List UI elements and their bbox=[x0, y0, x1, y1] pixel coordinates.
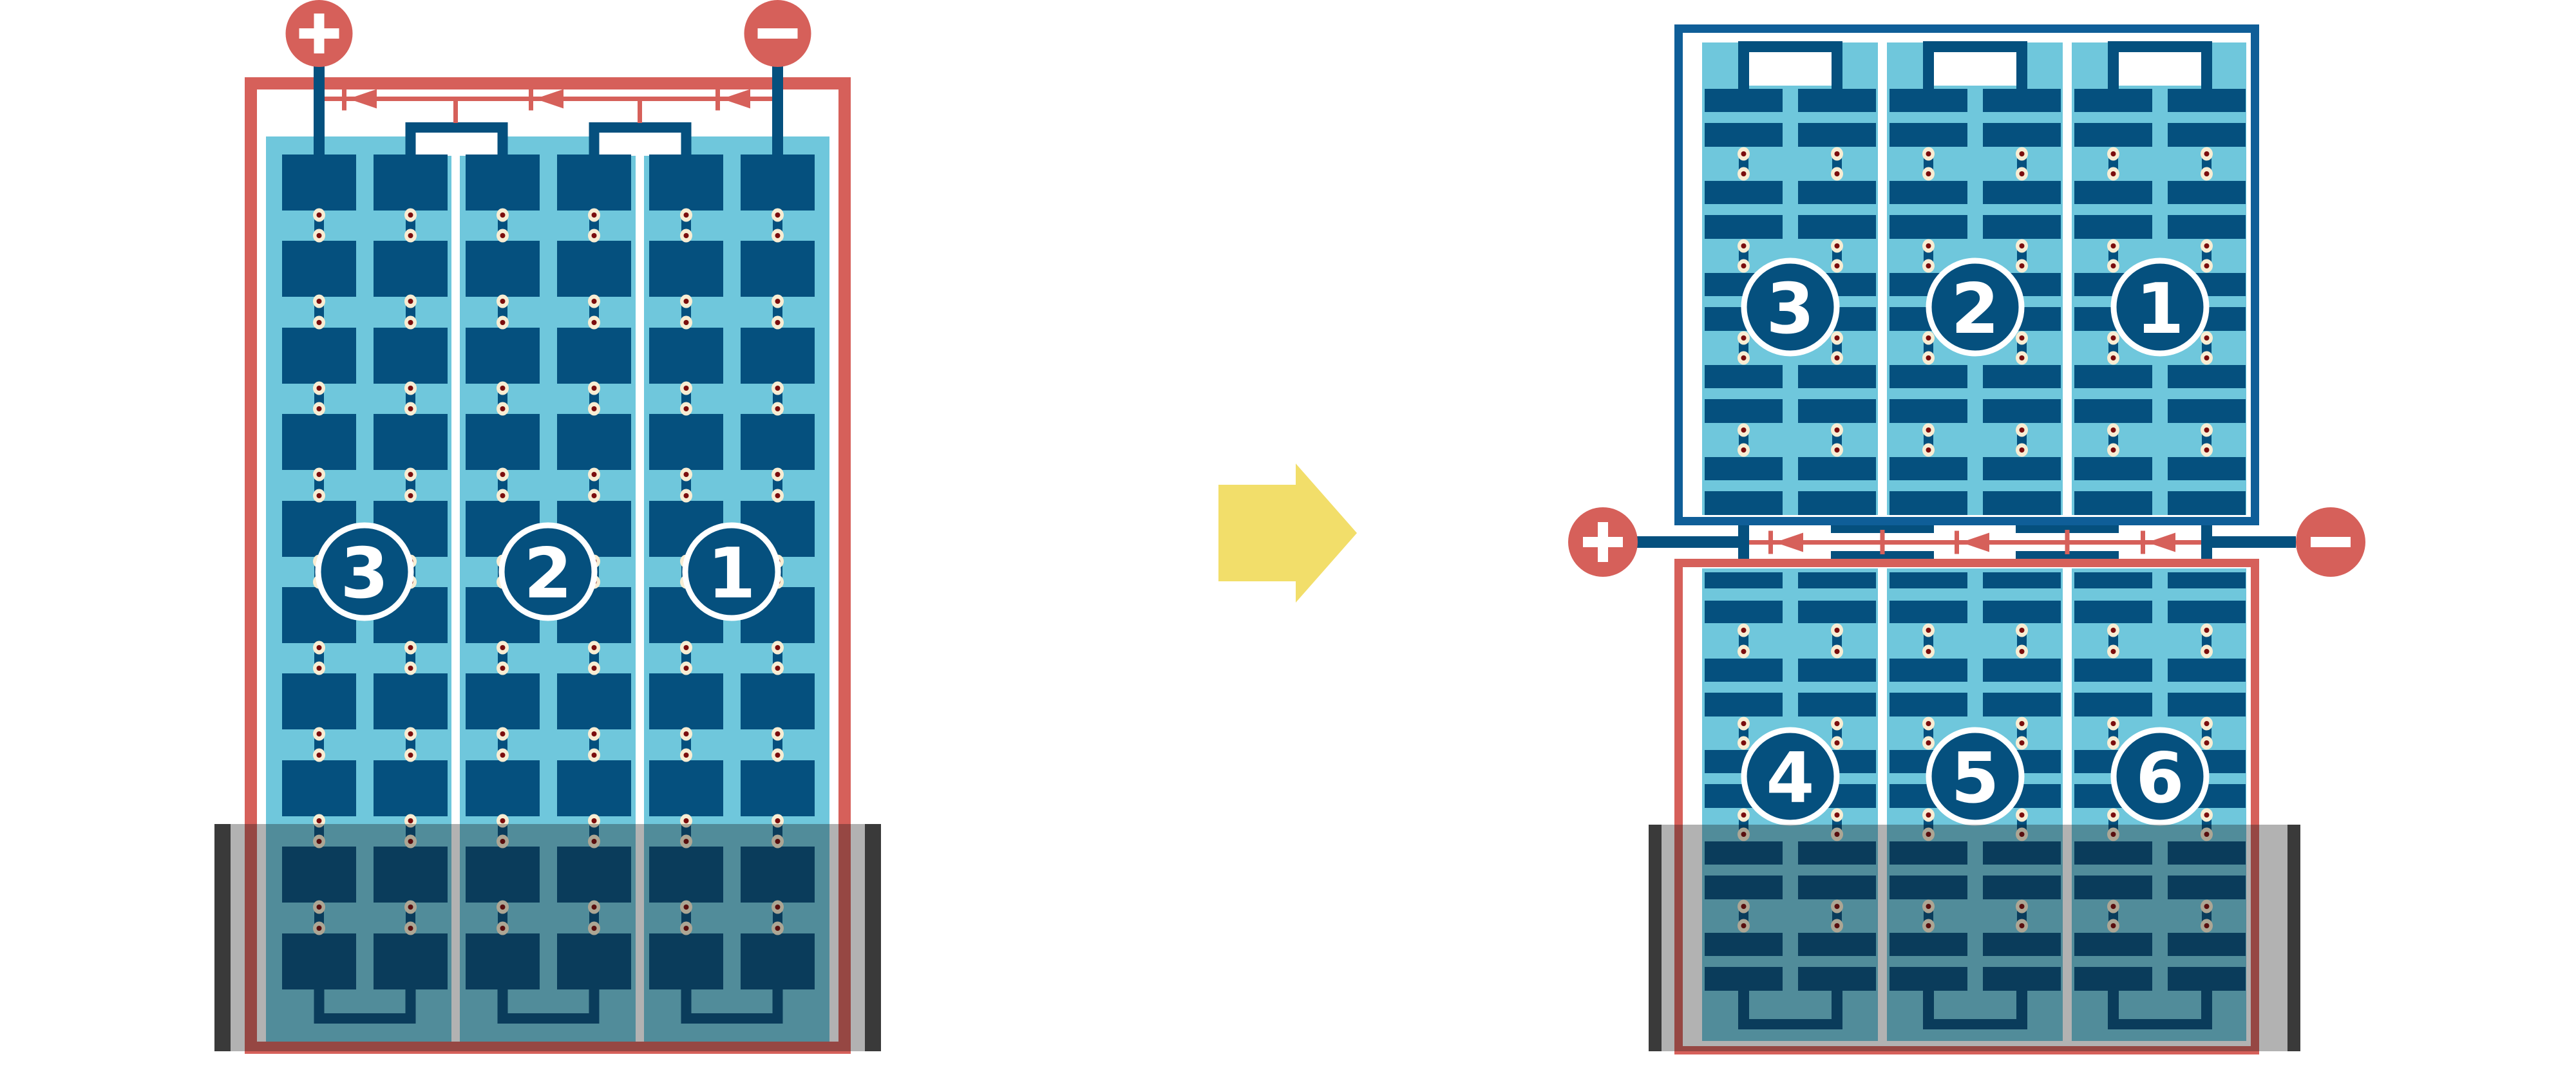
pv-cell bbox=[1983, 457, 2061, 480]
pv-cell bbox=[2168, 659, 2246, 682]
solder-joint-core bbox=[500, 731, 506, 736]
pv-cell bbox=[1798, 215, 1876, 239]
busbar bbox=[1923, 41, 2027, 52]
pv-cell bbox=[1889, 457, 1967, 480]
pv-cell bbox=[1889, 601, 1967, 623]
pv-cell bbox=[649, 241, 723, 297]
solder-joint-core bbox=[500, 645, 506, 650]
pv-cell bbox=[466, 673, 540, 729]
pv-cell bbox=[557, 155, 631, 211]
solder-joint-core bbox=[1741, 355, 1747, 361]
solder-joint-core bbox=[1835, 263, 1840, 268]
terminal-wire bbox=[772, 64, 783, 155]
pv-cell bbox=[741, 414, 815, 470]
solder-joint-core bbox=[684, 320, 689, 325]
diode-cathode-bar bbox=[529, 88, 533, 111]
busbar-leg bbox=[589, 133, 600, 156]
busbar-leg bbox=[406, 133, 416, 156]
pv-cell bbox=[2074, 215, 2152, 239]
busbar-window bbox=[2119, 52, 2201, 86]
solder-joint-core bbox=[1741, 628, 1747, 633]
solder-joint-core bbox=[500, 299, 506, 304]
solder-joint-core bbox=[684, 753, 689, 758]
solder-joint-core bbox=[1835, 335, 1840, 341]
solder-joint-core bbox=[1926, 427, 1931, 433]
bypass-diode-icon bbox=[722, 89, 750, 109]
solder-joint-core bbox=[2204, 335, 2210, 341]
solder-joint-core bbox=[684, 233, 689, 238]
solder-joint-core bbox=[1926, 355, 1931, 361]
solder-joint-core bbox=[2111, 649, 2116, 654]
pv-cell bbox=[557, 760, 631, 816]
solder-joint-core bbox=[775, 406, 781, 411]
solder-joint-core bbox=[408, 299, 413, 304]
pv-cell bbox=[1705, 181, 1783, 204]
solder-joint-core bbox=[2204, 812, 2210, 818]
pv-cell bbox=[1705, 659, 1783, 682]
pv-cell bbox=[1889, 659, 1967, 682]
diagram-canvas: 321321456 bbox=[0, 0, 2576, 1068]
solder-joint-core bbox=[2020, 628, 2025, 633]
solder-joint-core bbox=[2111, 151, 2116, 156]
solder-joint-core bbox=[1835, 243, 1840, 248]
solder-joint-core bbox=[1741, 335, 1747, 341]
solder-joint-core bbox=[1741, 740, 1747, 745]
pv-cell bbox=[1798, 601, 1876, 623]
solder-joint-core bbox=[500, 406, 506, 411]
pv-cell bbox=[2168, 693, 2246, 717]
busbar bbox=[1738, 41, 1842, 52]
solder-joint-core bbox=[2111, 447, 2116, 453]
solder-joint-core bbox=[592, 320, 597, 325]
solder-joint-core bbox=[592, 386, 597, 391]
busbar bbox=[406, 122, 508, 133]
substring-number: 3 bbox=[1766, 269, 1814, 350]
solder-joint-core bbox=[317, 666, 322, 671]
solder-joint-core bbox=[775, 818, 781, 823]
solder-joint-core bbox=[1926, 447, 1931, 453]
pv-cell bbox=[741, 760, 815, 816]
solder-joint-core bbox=[500, 753, 506, 758]
solder-joint-core bbox=[1926, 335, 1931, 341]
pv-cell bbox=[2168, 123, 2246, 147]
pv-cell bbox=[466, 328, 540, 384]
solder-joint-core bbox=[317, 645, 322, 650]
solder-joint-core bbox=[592, 645, 597, 650]
diode-cathode-bar bbox=[715, 88, 720, 111]
terminal-tab bbox=[1738, 525, 1749, 559]
pv-cell bbox=[649, 328, 723, 384]
pv-cell bbox=[282, 155, 356, 211]
pv-cell bbox=[1983, 89, 2061, 112]
solder-joint-core bbox=[500, 386, 506, 391]
terminal-wire bbox=[2212, 536, 2296, 548]
solder-joint-core bbox=[684, 493, 689, 498]
solder-joint-core bbox=[317, 386, 322, 391]
solder-joint-core bbox=[1926, 171, 1931, 176]
pv-cell bbox=[1798, 693, 1876, 717]
solder-joint-core bbox=[2020, 447, 2025, 453]
terminal-wire bbox=[314, 64, 325, 155]
pv-cell bbox=[1705, 601, 1783, 623]
solder-joint-core bbox=[408, 233, 413, 238]
solder-joint-core bbox=[1835, 151, 1840, 156]
bypass-diode-icon bbox=[2147, 533, 2175, 552]
pv-cell bbox=[649, 155, 723, 211]
solder-joint-core bbox=[1926, 628, 1931, 633]
solder-joint-core bbox=[775, 493, 781, 498]
pv-cell bbox=[282, 673, 356, 729]
pv-cell bbox=[1983, 572, 2061, 588]
solder-joint-core bbox=[2204, 447, 2210, 453]
panel-reconfiguration-diagram: 321321456 bbox=[0, 0, 2576, 1068]
pv-cell bbox=[2074, 399, 2152, 423]
solder-joint-core bbox=[317, 299, 322, 304]
solder-joint-core bbox=[1926, 812, 1931, 818]
pv-cell bbox=[1705, 399, 1783, 423]
busbar-leg bbox=[2016, 52, 2027, 89]
solder-joint-core bbox=[684, 212, 689, 218]
plus-sign bbox=[1598, 522, 1608, 562]
solder-joint-core bbox=[1926, 151, 1931, 156]
pv-cell bbox=[374, 241, 448, 297]
bypass-diode-icon bbox=[1961, 533, 1989, 552]
solder-joint-core bbox=[684, 645, 689, 650]
solder-joint-core bbox=[317, 472, 322, 477]
solder-joint-core bbox=[2111, 427, 2116, 433]
solder-joint-core bbox=[1835, 649, 1840, 654]
pv-cell bbox=[466, 760, 540, 816]
pv-cell bbox=[2074, 491, 2152, 515]
pv-cell bbox=[2074, 572, 2152, 588]
solder-joint-core bbox=[408, 212, 413, 218]
solder-joint-core bbox=[408, 320, 413, 325]
flood-water-edge bbox=[2287, 825, 2300, 1051]
solder-joint-core bbox=[592, 666, 597, 671]
solder-joint-core bbox=[2204, 740, 2210, 745]
minus-sign bbox=[2311, 537, 2351, 547]
pv-cell bbox=[282, 414, 356, 470]
solder-joint-core bbox=[592, 406, 597, 411]
pv-cell bbox=[2168, 365, 2246, 388]
pv-cell bbox=[2168, 572, 2246, 588]
terminal-tab bbox=[2201, 525, 2212, 559]
solder-joint-core bbox=[500, 818, 506, 823]
substring-number: 1 bbox=[2136, 269, 2184, 350]
busbar-window bbox=[600, 133, 681, 156]
solder-joint-core bbox=[592, 493, 597, 498]
solder-joint-core bbox=[2204, 649, 2210, 654]
solder-joint-core bbox=[2020, 740, 2025, 745]
substring-number: 4 bbox=[1766, 738, 1814, 819]
solder-joint-core bbox=[317, 818, 322, 823]
solder-joint-core bbox=[2111, 740, 2116, 745]
pv-cell bbox=[649, 760, 723, 816]
pv-cell bbox=[1798, 365, 1876, 388]
solder-joint-core bbox=[775, 233, 781, 238]
pv-cell bbox=[2074, 457, 2152, 480]
pv-cell bbox=[2074, 123, 2152, 147]
pv-cell bbox=[1705, 365, 1783, 388]
pv-cell bbox=[2074, 89, 2152, 112]
bypass-diode-icon bbox=[348, 89, 377, 109]
busbar-leg bbox=[681, 133, 692, 156]
solder-joint-core bbox=[2204, 263, 2210, 268]
busbar bbox=[2108, 41, 2212, 52]
solder-joint-core bbox=[1741, 427, 1747, 433]
pv-cell bbox=[2074, 659, 2152, 682]
pv-cell bbox=[2168, 457, 2246, 480]
solder-joint-core bbox=[684, 406, 689, 411]
solder-joint-core bbox=[2020, 263, 2025, 268]
pv-cell bbox=[1889, 89, 1967, 112]
solder-joint-core bbox=[592, 753, 597, 758]
pv-cell bbox=[1889, 693, 1967, 717]
pv-cell bbox=[649, 673, 723, 729]
solder-joint-core bbox=[1926, 243, 1931, 248]
solder-joint-core bbox=[1926, 649, 1931, 654]
pv-cell bbox=[1983, 399, 2061, 423]
pv-cell bbox=[282, 760, 356, 816]
solder-joint-core bbox=[684, 731, 689, 736]
busbar-leg bbox=[1923, 52, 1934, 89]
solder-joint-core bbox=[2020, 649, 2025, 654]
solder-joint-core bbox=[2111, 171, 2116, 176]
pv-cell bbox=[741, 673, 815, 729]
pv-cell bbox=[1983, 693, 2061, 717]
pv-cell bbox=[466, 155, 540, 211]
pv-cell bbox=[1798, 181, 1876, 204]
pv-cell bbox=[741, 155, 815, 211]
solder-joint-core bbox=[408, 472, 413, 477]
solder-joint-core bbox=[2020, 427, 2025, 433]
solder-joint-core bbox=[2204, 243, 2210, 248]
pv-cell bbox=[1889, 399, 1967, 423]
solder-joint-core bbox=[2204, 171, 2210, 176]
solder-joint-core bbox=[775, 731, 781, 736]
pv-cell bbox=[1705, 572, 1783, 588]
pv-cell bbox=[1889, 215, 1967, 239]
solder-joint-core bbox=[684, 472, 689, 477]
pv-cell bbox=[1705, 123, 1783, 147]
pv-cell bbox=[1798, 89, 1876, 112]
pv-cell bbox=[374, 673, 448, 729]
right-top-panel: 321 bbox=[1679, 29, 2255, 521]
busbar-window bbox=[1934, 52, 2016, 86]
solder-joint-core bbox=[408, 645, 413, 650]
solder-joint-core bbox=[408, 493, 413, 498]
solder-joint-core bbox=[1741, 243, 1747, 248]
pv-cell bbox=[2168, 89, 2246, 112]
substring-divider bbox=[2063, 42, 2072, 515]
pv-cell bbox=[1889, 572, 1967, 588]
substring-number: 5 bbox=[1951, 738, 1999, 819]
solder-joint-core bbox=[2020, 812, 2025, 818]
pv-cell bbox=[1983, 601, 2061, 623]
pv-cell bbox=[374, 760, 448, 816]
pv-cell bbox=[1798, 491, 1876, 515]
solder-joint-core bbox=[1835, 447, 1840, 453]
solder-joint-core bbox=[775, 299, 781, 304]
solder-joint-core bbox=[1741, 263, 1747, 268]
solder-joint-core bbox=[2020, 721, 2025, 726]
pv-cell bbox=[1798, 123, 1876, 147]
solder-joint-core bbox=[2020, 355, 2025, 361]
pv-cell bbox=[2168, 399, 2246, 423]
solder-joint-core bbox=[684, 386, 689, 391]
solder-joint-core bbox=[1835, 427, 1840, 433]
solder-joint-core bbox=[592, 299, 597, 304]
solder-joint-core bbox=[2204, 151, 2210, 156]
substring-number: 2 bbox=[1951, 269, 1999, 350]
diode-cathode-bar bbox=[1955, 531, 1959, 554]
terminal-wire bbox=[1636, 536, 1738, 548]
pv-cell bbox=[374, 328, 448, 384]
solder-joint-core bbox=[1835, 628, 1840, 633]
solder-joint-core bbox=[500, 472, 506, 477]
busbar-leg bbox=[2201, 52, 2212, 89]
pv-cell bbox=[649, 414, 723, 470]
pv-cell bbox=[1705, 693, 1783, 717]
solder-joint-core bbox=[775, 645, 781, 650]
pv-cell bbox=[557, 241, 631, 297]
solder-joint-core bbox=[317, 233, 322, 238]
pv-cell bbox=[1705, 215, 1783, 239]
solder-joint-core bbox=[775, 212, 781, 218]
pv-cell bbox=[1889, 123, 1967, 147]
solder-joint-core bbox=[1835, 812, 1840, 818]
busbar-stub bbox=[1880, 530, 1885, 554]
pv-cell bbox=[1705, 89, 1783, 112]
solder-joint-core bbox=[1741, 447, 1747, 453]
solder-joint-core bbox=[775, 386, 781, 391]
diode-cathode-bar bbox=[2141, 531, 2145, 554]
solder-joint-core bbox=[317, 493, 322, 498]
pv-cell bbox=[1983, 365, 2061, 388]
pv-cell bbox=[1705, 491, 1783, 515]
solder-joint-core bbox=[1741, 171, 1747, 176]
solder-joint-core bbox=[2111, 243, 2116, 248]
pv-cell bbox=[2074, 693, 2152, 717]
busbar-leg bbox=[1832, 52, 1842, 89]
pv-cell bbox=[282, 241, 356, 297]
solder-joint-core bbox=[408, 406, 413, 411]
pv-cell bbox=[1983, 491, 2061, 515]
solder-joint-core bbox=[408, 386, 413, 391]
solder-joint-core bbox=[1926, 721, 1931, 726]
pv-cell bbox=[741, 241, 815, 297]
substring-number: 6 bbox=[2136, 738, 2184, 819]
solder-joint-core bbox=[1741, 649, 1747, 654]
solder-joint-core bbox=[500, 493, 506, 498]
solder-joint-core bbox=[592, 212, 597, 218]
busbar-stub bbox=[2065, 530, 2070, 554]
plus-sign bbox=[314, 14, 325, 53]
solder-joint-core bbox=[2111, 355, 2116, 361]
solder-joint-core bbox=[592, 818, 597, 823]
solder-joint-core bbox=[1835, 721, 1840, 726]
flood-water-edge bbox=[1649, 825, 1662, 1051]
pv-cell bbox=[1983, 123, 2061, 147]
right-bottom-panel: 456 bbox=[1649, 563, 2300, 1052]
pv-cell bbox=[557, 328, 631, 384]
pv-cell bbox=[2074, 365, 2152, 388]
pv-cell bbox=[1798, 572, 1876, 588]
solder-joint-core bbox=[408, 666, 413, 671]
pv-cell bbox=[466, 414, 540, 470]
solder-joint-core bbox=[408, 818, 413, 823]
solder-joint-core bbox=[592, 472, 597, 477]
diode-cathode-bar bbox=[342, 88, 346, 111]
solder-joint-core bbox=[2111, 335, 2116, 341]
solder-joint-core bbox=[1741, 812, 1747, 818]
solder-joint-core bbox=[317, 212, 322, 218]
solder-joint-core bbox=[775, 472, 781, 477]
solder-joint-core bbox=[684, 666, 689, 671]
solder-joint-core bbox=[684, 299, 689, 304]
busbar-leg bbox=[2108, 52, 2119, 89]
solder-joint-core bbox=[2111, 721, 2116, 726]
solder-joint-core bbox=[500, 212, 506, 218]
pv-cell bbox=[557, 414, 631, 470]
solder-joint-core bbox=[1926, 263, 1931, 268]
bypass-diode-icon bbox=[1775, 533, 1803, 552]
flood-water-overlay bbox=[214, 824, 881, 1051]
solder-joint-core bbox=[2204, 355, 2210, 361]
left-panel: 321 bbox=[214, 0, 881, 1051]
pv-cell bbox=[2074, 181, 2152, 204]
substring-number: 1 bbox=[707, 534, 755, 614]
solder-joint-core bbox=[500, 666, 506, 671]
solder-joint-core bbox=[317, 320, 322, 325]
pv-cell bbox=[282, 328, 356, 384]
solder-joint-core bbox=[408, 731, 413, 736]
solder-joint-core bbox=[500, 233, 506, 238]
busbar-window bbox=[1749, 52, 1832, 86]
pv-cell bbox=[741, 328, 815, 384]
solder-joint-core bbox=[1835, 355, 1840, 361]
pv-cell bbox=[1889, 181, 1967, 204]
solder-joint-core bbox=[2111, 628, 2116, 633]
busbar-leg bbox=[498, 133, 508, 156]
substring-divider bbox=[1878, 42, 1887, 515]
pv-cell bbox=[1889, 491, 1967, 515]
pv-cell bbox=[2168, 601, 2246, 623]
pv-cell bbox=[2168, 181, 2246, 204]
pv-cell bbox=[2168, 215, 2246, 239]
solder-joint-core bbox=[684, 818, 689, 823]
pv-cell bbox=[1798, 659, 1876, 682]
minus-sign bbox=[758, 28, 798, 39]
solder-joint-core bbox=[592, 731, 597, 736]
solder-joint-core bbox=[500, 320, 506, 325]
pv-cell bbox=[1705, 457, 1783, 480]
diode-cathode-bar bbox=[1768, 531, 1773, 554]
busbar-stub bbox=[638, 98, 642, 123]
pv-cell bbox=[466, 241, 540, 297]
busbar-window bbox=[416, 133, 498, 156]
solder-joint-core bbox=[317, 731, 322, 736]
pv-cell bbox=[1889, 365, 1967, 388]
pv-cell bbox=[1983, 181, 2061, 204]
solder-joint-core bbox=[2204, 628, 2210, 633]
pv-cell bbox=[1983, 659, 2061, 682]
solder-joint-core bbox=[2111, 263, 2116, 268]
busbar-leg bbox=[1738, 52, 1749, 89]
solder-joint-core bbox=[1926, 740, 1931, 745]
transform-arrow bbox=[1218, 464, 1357, 603]
solder-joint-core bbox=[775, 666, 781, 671]
